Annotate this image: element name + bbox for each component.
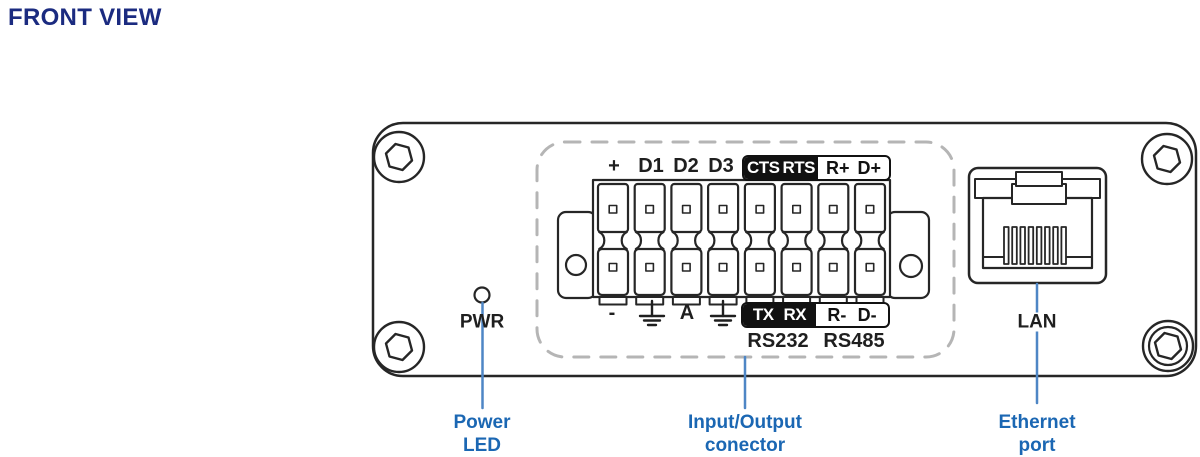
pwr-label: PWR: [460, 313, 504, 332]
pin-label-rminus: R-: [827, 305, 846, 326]
screw-icon: [374, 322, 424, 372]
rj45-port-icon: [969, 168, 1106, 283]
terminal-block: [558, 180, 929, 305]
serial-bottom-badge: TX RX R- D-: [741, 302, 890, 328]
rminus-dminus-badge: R- D-: [816, 304, 888, 326]
screw-icon: [1143, 321, 1193, 371]
pin-label-minus: -: [609, 303, 616, 323]
rs485-label: RS485: [823, 331, 884, 351]
diagram-artwork: [0, 0, 1200, 457]
screw-icon: [374, 132, 424, 182]
cts-rts-badge: CTS RTS: [744, 157, 818, 179]
rplus-dplus-badge: R+ D+: [818, 157, 889, 179]
front-view-diagram: FRONT VIEW PWR LAN + D1 D2 D3 CTS RTS R+…: [0, 0, 1200, 457]
serial-top-badge: CTS RTS R+ D+: [742, 155, 891, 181]
pin-label-tx: TX: [753, 305, 774, 325]
pin-label-dplus: D+: [857, 158, 881, 179]
page-title: FRONT VIEW: [8, 4, 162, 32]
ethernet-port-callout-label: Ethernet port: [998, 411, 1075, 457]
screw-icon: [1142, 134, 1192, 184]
pin-label-a: A: [680, 303, 694, 323]
tx-rx-badge: TX RX: [743, 304, 816, 326]
pin-label-d2: D2: [673, 156, 699, 176]
pin-label-plus: +: [608, 156, 620, 176]
pin-label-rts: RTS: [783, 158, 816, 178]
rs232-label: RS232: [747, 331, 808, 351]
lan-label: LAN: [1012, 313, 1061, 332]
pin-label-d1: D1: [638, 156, 664, 176]
pin-label-d3: D3: [708, 156, 734, 176]
pin-label-rx: RX: [783, 305, 806, 325]
pin-label-rplus: R+: [826, 158, 850, 179]
pin-label-cts: CTS: [747, 158, 780, 178]
io-connector-callout-label: Input/Output conector: [688, 411, 802, 457]
pin-label-dminus: D-: [858, 305, 877, 326]
power-led-indicator: [475, 288, 490, 303]
power-led-callout-label: Power LED: [453, 411, 510, 457]
